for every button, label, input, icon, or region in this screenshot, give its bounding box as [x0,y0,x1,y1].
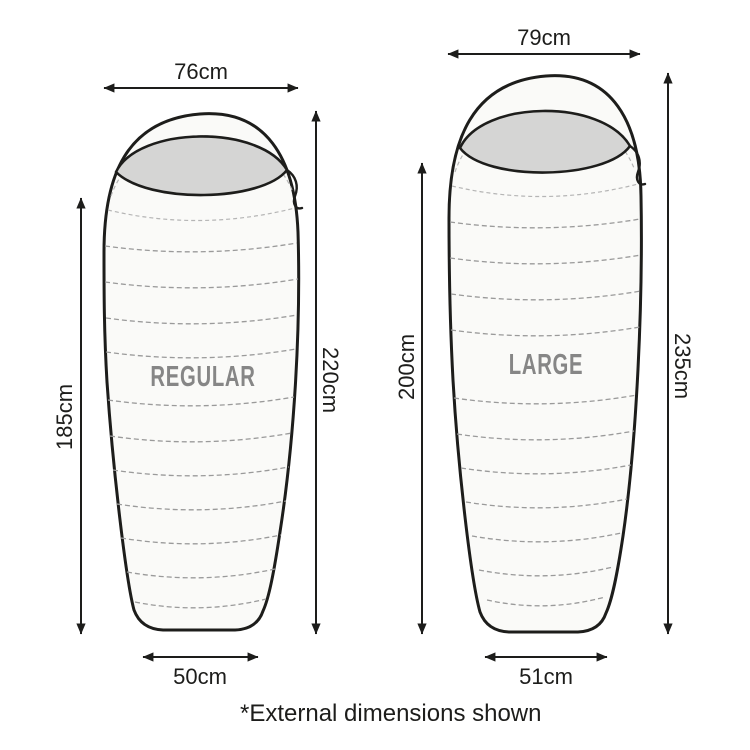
footnote: *External dimensions shown [240,700,542,727]
large-top-width-label: 79cm [517,25,571,50]
large-outer-length-label: 235cm [670,333,695,399]
regular-size-label: REGULAR [150,361,255,393]
large-inner-length-label: 200cm [394,334,419,400]
regular-inner-length-label: 185cm [52,384,77,450]
regular-top-width-label: 76cm [174,59,228,84]
regular-bag: REGULAR [104,114,302,630]
diagram-canvas: REGULAR LARGE 76cm 185cm 220cm 50cm 79cm… [0,0,750,750]
regular-foot-width-label: 50cm [173,664,227,689]
sleeping-bag-size-diagram: REGULAR LARGE 76cm 185cm 220cm 50cm 79cm… [0,0,750,750]
large-bag: LARGE [449,76,645,632]
large-size-label: LARGE [509,349,584,381]
regular-outer-length-label: 220cm [318,347,343,413]
large-foot-width-label: 51cm [519,664,573,689]
